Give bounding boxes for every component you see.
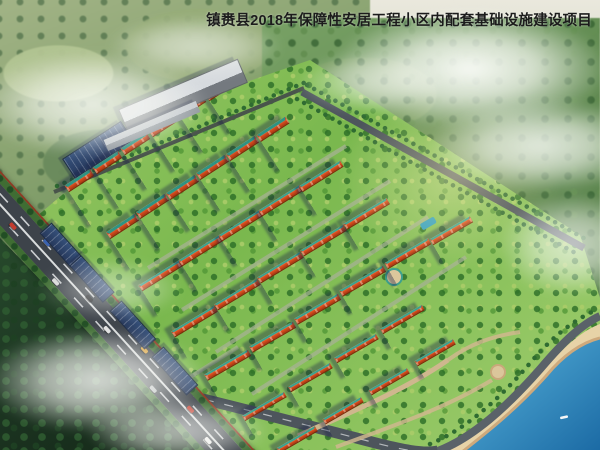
building-roof bbox=[214, 279, 260, 311]
building-facade bbox=[249, 322, 293, 349]
building bbox=[288, 363, 344, 411]
building-facade bbox=[380, 305, 423, 331]
building bbox=[380, 305, 436, 353]
project-title: 镇赉县2018年保障性安居工程小区内配套基础设施建设项目 bbox=[206, 9, 592, 30]
cloud bbox=[38, 258, 183, 320]
building-facade bbox=[415, 339, 454, 363]
building-roof bbox=[259, 185, 303, 216]
building-roof bbox=[257, 252, 303, 284]
building-facade bbox=[214, 279, 258, 306]
building-facade bbox=[288, 363, 331, 389]
building-facade bbox=[171, 306, 215, 333]
building bbox=[323, 397, 374, 441]
building-roof bbox=[219, 210, 263, 241]
building-facade bbox=[334, 334, 377, 360]
building-facade bbox=[257, 252, 301, 279]
building bbox=[334, 334, 390, 382]
building-facade bbox=[259, 185, 301, 212]
building bbox=[369, 368, 420, 412]
architectural-rendering: 镇赉县2018年保障性安居工程小区内配套基础设施建设项目 bbox=[0, 0, 600, 450]
building-roof bbox=[204, 350, 251, 381]
building bbox=[277, 426, 328, 450]
building-roof bbox=[171, 306, 217, 338]
building bbox=[415, 339, 466, 383]
cloud bbox=[296, 52, 441, 114]
building-facade bbox=[277, 426, 316, 450]
building-facade bbox=[204, 350, 248, 377]
building-roof bbox=[249, 322, 296, 353]
building-facade bbox=[323, 397, 362, 421]
building-facade bbox=[369, 368, 408, 392]
